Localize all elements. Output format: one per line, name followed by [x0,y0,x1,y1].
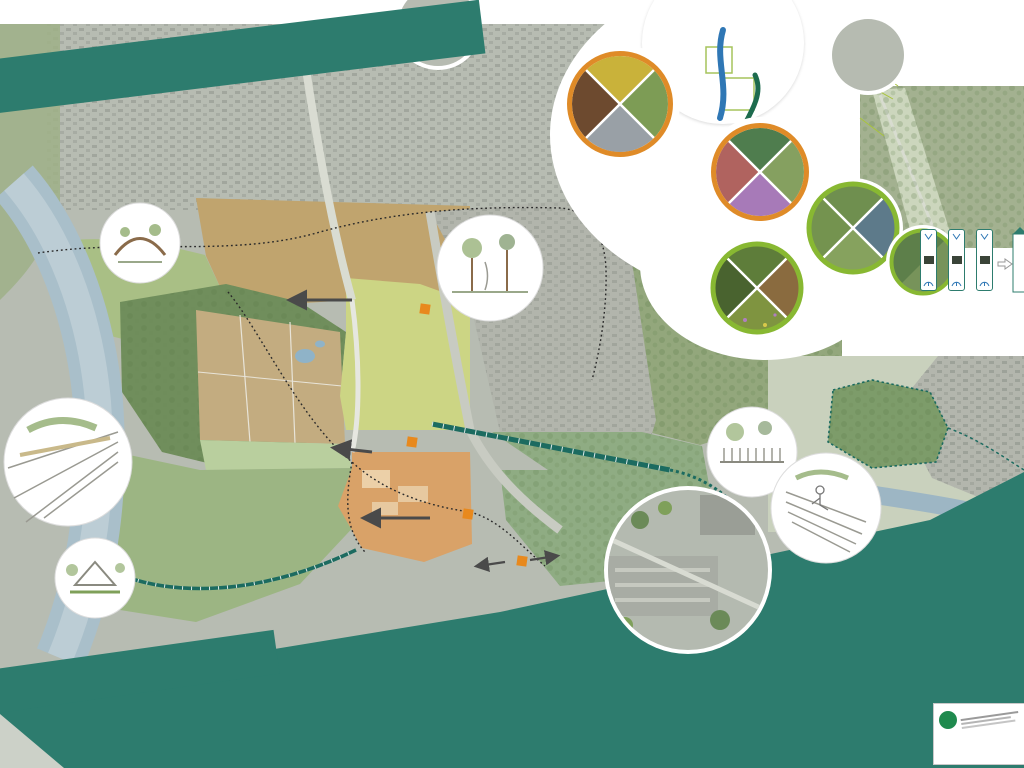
sketch-inset-steps [771,453,881,563]
aerial-inset-sport [604,486,772,654]
poster [0,0,1024,768]
